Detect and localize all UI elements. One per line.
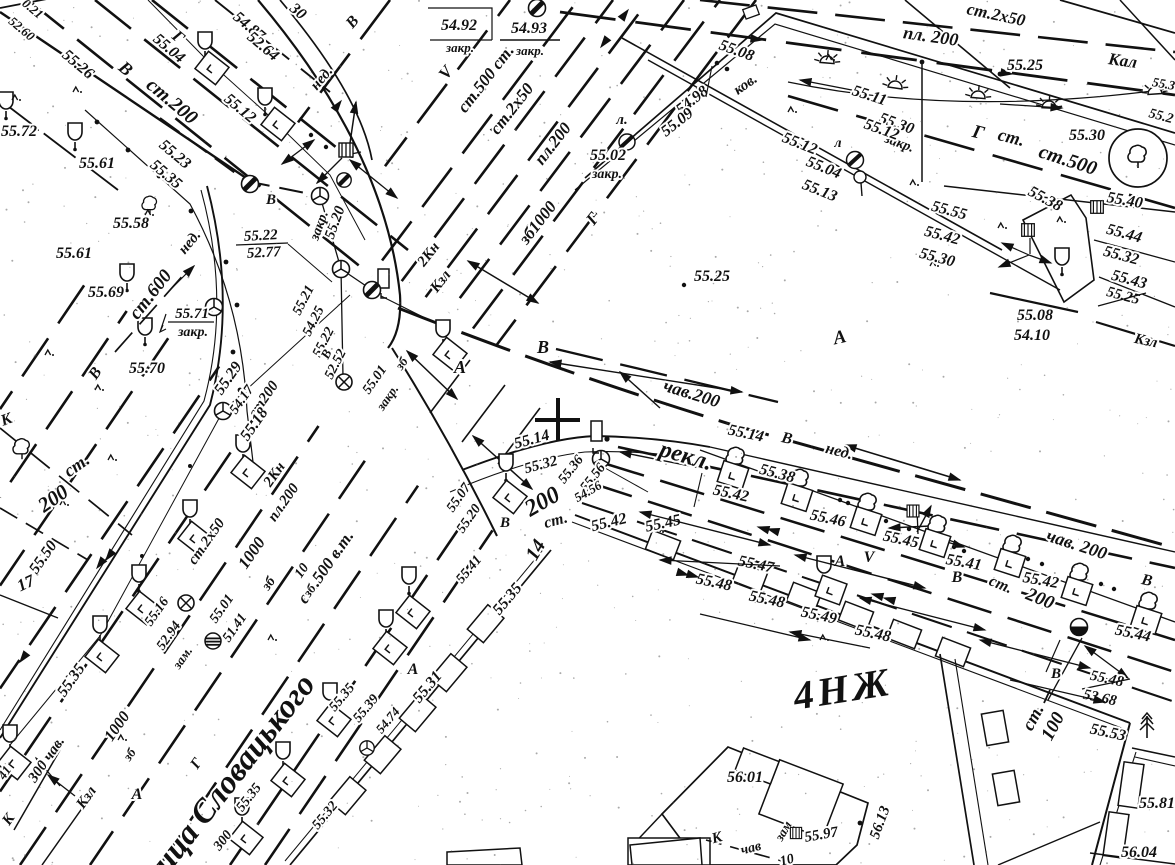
svg-text:В: В: [265, 192, 276, 208]
svg-text:закр.: закр.: [515, 43, 544, 58]
svg-text:закр.: закр.: [177, 325, 208, 340]
svg-text:55.81: 55.81: [1139, 795, 1175, 812]
svg-text:55.61: 55.61: [79, 155, 115, 172]
svg-text:56.04: 56.04: [1121, 844, 1157, 861]
svg-text:55.71: 55.71: [175, 306, 209, 322]
svg-text:54.93: 54.93: [511, 20, 547, 37]
svg-text:55.72: 55.72: [1, 123, 37, 140]
svg-text:56.01: 56.01: [727, 769, 763, 786]
svg-text:55.69: 55.69: [88, 284, 124, 301]
svg-text:55.30: 55.30: [1069, 127, 1105, 144]
svg-text:В: В: [536, 337, 549, 357]
svg-text:л.: л.: [615, 112, 627, 128]
svg-text:55.22: 55.22: [244, 227, 279, 245]
svg-text:55.25: 55.25: [694, 268, 730, 285]
svg-text:л: л: [833, 136, 841, 151]
svg-text:55.61: 55.61: [56, 245, 92, 262]
svg-text:закр.: закр.: [445, 40, 474, 55]
svg-text:В: В: [499, 515, 510, 531]
svg-text:54.92: 54.92: [441, 17, 477, 34]
svg-text:закр.: закр.: [591, 167, 622, 182]
svg-text:55.25: 55.25: [1007, 57, 1043, 74]
svg-text:А: А: [131, 786, 143, 803]
svg-text:55.70: 55.70: [129, 360, 165, 377]
svg-text:А: А: [453, 357, 466, 377]
svg-text:54.10: 54.10: [1014, 327, 1050, 344]
svg-text:В: В: [1050, 666, 1061, 682]
svg-text:52.77: 52.77: [247, 244, 282, 262]
svg-text:55.58: 55.58: [113, 215, 149, 232]
svg-text:55.02: 55.02: [590, 147, 626, 164]
svg-text:55.08: 55.08: [1017, 307, 1053, 324]
svg-text:В: В: [951, 569, 963, 586]
svg-text:V: V: [864, 549, 876, 566]
svg-text:А: А: [407, 661, 419, 678]
